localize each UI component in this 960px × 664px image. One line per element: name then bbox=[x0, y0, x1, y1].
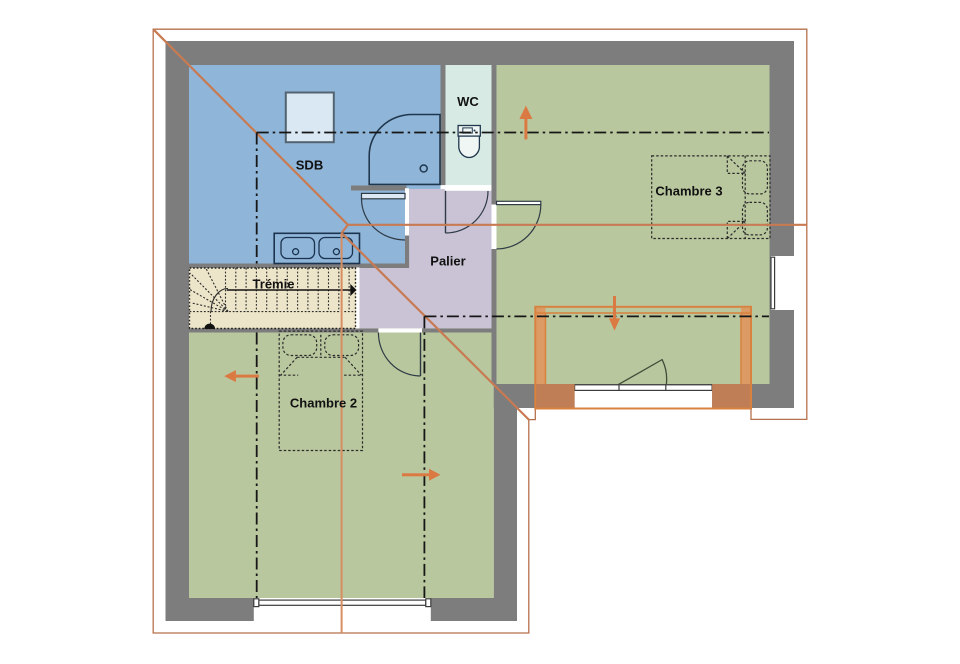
svg-text:Chambre 2: Chambre 2 bbox=[290, 396, 357, 411]
svg-text:WC: WC bbox=[457, 94, 479, 109]
svg-text:Chambre 3: Chambre 3 bbox=[655, 184, 722, 199]
svg-text:Trémie: Trémie bbox=[253, 277, 295, 292]
svg-text:SDB: SDB bbox=[296, 158, 323, 173]
svg-text:Palier: Palier bbox=[430, 254, 465, 269]
